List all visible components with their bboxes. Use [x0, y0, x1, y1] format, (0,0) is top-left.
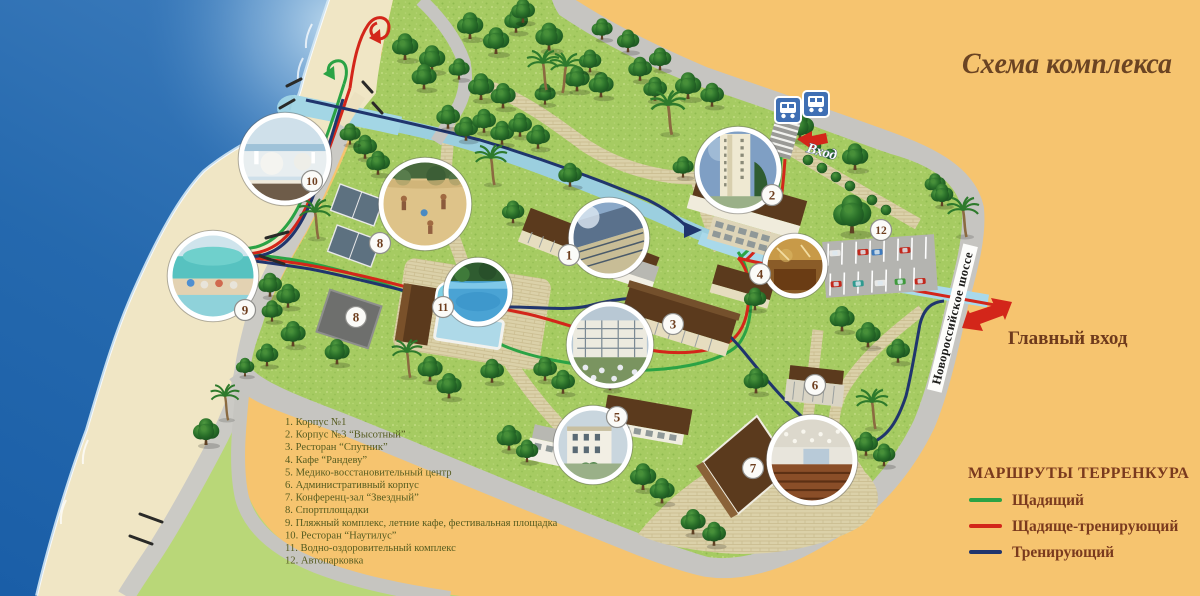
svg-text:7. Конференц-зал “Звездный”: 7. Конференц-зал “Звездный” [285, 493, 419, 504]
svg-text:Щадящий: Щадящий [1012, 492, 1084, 509]
svg-text:4. Кафе “Рандеву”: 4. Кафе “Рандеву” [285, 455, 367, 466]
svg-text:7: 7 [750, 461, 757, 476]
svg-text:9: 9 [242, 303, 249, 318]
svg-text:2. Корпус №3 “Высотный”: 2. Корпус №3 “Высотный” [285, 430, 406, 441]
svg-text:Щадяще-тренирующий: Щадяще-тренирующий [1012, 518, 1178, 535]
svg-text:Тренирующий: Тренирующий [1012, 544, 1114, 561]
svg-text:1: 1 [566, 248, 573, 263]
svg-text:4: 4 [757, 267, 764, 282]
svg-text:3: 3 [670, 317, 677, 332]
svg-text:2: 2 [769, 188, 776, 203]
svg-text:МАРШРУТЫ ТЕРРЕНКУРА: МАРШРУТЫ ТЕРРЕНКУРА [968, 465, 1189, 482]
svg-text:8: 8 [353, 310, 360, 325]
svg-text:Схема комплекса: Схема комплекса [962, 47, 1172, 80]
svg-text:5: 5 [614, 410, 621, 425]
svg-text:8. Спортплощадки: 8. Спортплощадки [285, 505, 369, 516]
svg-text:5. Медико-восстановительный це: 5. Медико-восстановительный центр [285, 467, 452, 478]
svg-text:11. Водно-оздоровительный комп: 11. Водно-оздоровительный комплекс [285, 543, 456, 554]
svg-text:1. Корпус №1: 1. Корпус №1 [285, 417, 346, 428]
svg-text:12: 12 [875, 225, 887, 237]
svg-text:11: 11 [438, 302, 449, 314]
svg-text:10: 10 [306, 176, 318, 188]
svg-text:6: 6 [812, 378, 819, 393]
svg-text:Главный вход: Главный вход [1008, 328, 1128, 349]
svg-text:9. Пляжный комплекс, летние ка: 9. Пляжный комплекс, летние кафе, фестив… [285, 518, 558, 529]
svg-text:3. Ресторан “Спутник”: 3. Ресторан “Спутник” [285, 442, 388, 453]
svg-text:8: 8 [377, 236, 384, 251]
svg-text:10. Ресторан “Наутилус”: 10. Ресторан “Наутилус” [285, 530, 397, 541]
svg-text:12. Автопарковка: 12. Автопарковка [285, 556, 364, 567]
svg-text:6. Административный корпус: 6. Административный корпус [285, 480, 419, 491]
